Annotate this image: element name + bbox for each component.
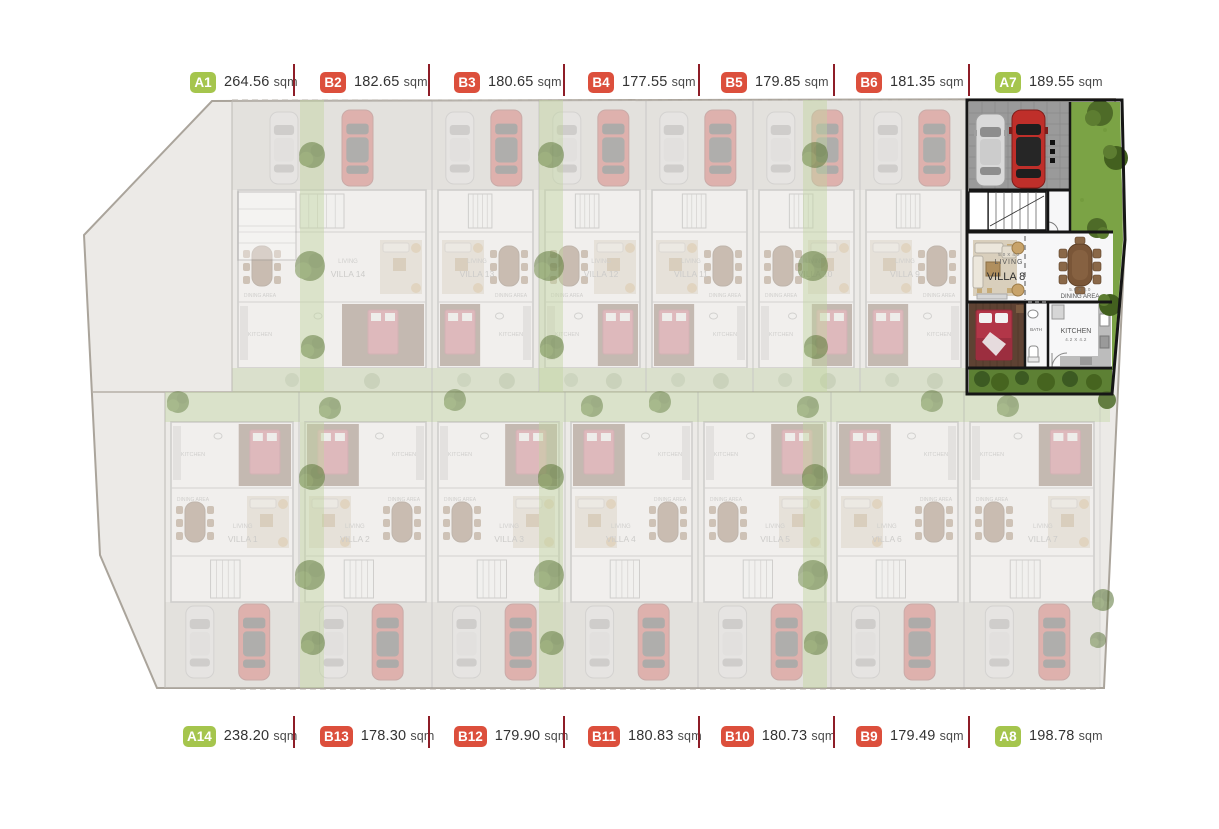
room-label: DINING AREA: [244, 293, 277, 299]
stair: [988, 192, 1046, 230]
tree: [299, 142, 325, 168]
villa-name-label: VILLA 7: [1028, 534, 1058, 544]
tree: [534, 251, 564, 281]
villa-name-label: VILLA 4: [606, 534, 636, 544]
villa8-name-label: VILLA 8: [987, 271, 1026, 283]
plot-badge[interactable]: B11: [588, 726, 620, 747]
room-label: KITCHEN: [713, 332, 737, 338]
silver-car: [985, 606, 1013, 678]
plot-label-A14[interactable]: A14238.20sqm: [183, 723, 298, 749]
plot-badge[interactable]: B13: [320, 726, 353, 747]
tree: [319, 397, 341, 419]
tree: [804, 631, 828, 655]
villa-name-label: VILLA 13: [460, 269, 495, 279]
area-unit: sqm: [811, 729, 835, 743]
plot-label-B10[interactable]: B10180.73sqm: [721, 723, 836, 749]
plot-label-B12[interactable]: B12179.90sqm: [454, 723, 569, 749]
tree: [802, 464, 828, 490]
room-label: LIVING: [1033, 524, 1053, 530]
plot-area: 180.73sqm: [762, 728, 836, 744]
room-label: DINING AREA: [920, 497, 953, 503]
silver-car: [767, 112, 795, 184]
room-label: KITCHEN: [769, 332, 793, 338]
room-label: KITCHEN: [980, 452, 1004, 458]
plot-badge[interactable]: B10: [721, 726, 754, 747]
tree: [797, 396, 819, 418]
tree: [921, 390, 943, 412]
room-label: LIVING: [499, 524, 519, 530]
label-divider: [698, 716, 700, 748]
room-label: KITCHEN: [448, 452, 472, 458]
plot-badge[interactable]: B9: [856, 726, 882, 747]
silver-car: [852, 606, 880, 678]
room-label: DINING AREA: [177, 497, 210, 503]
label-divider: [293, 716, 295, 748]
tree: [538, 464, 564, 490]
tree: [804, 335, 828, 359]
dining-dims-label: 5.9 X 4.0: [1069, 287, 1091, 292]
plot-label-A8[interactable]: A8198.78sqm: [995, 723, 1103, 749]
red-car: [1039, 604, 1070, 680]
tree: [299, 464, 325, 490]
tree: [167, 391, 189, 413]
site-plan-drawing: LIVINGVILLA 14DINING AREAKITCHENLIVINGVI…: [0, 0, 1219, 829]
plot-badge[interactable]: A14: [183, 726, 216, 747]
plot-area: 179.49sqm: [890, 728, 964, 744]
room-label: DINING AREA: [654, 497, 687, 503]
room-label: KITCHEN: [927, 332, 951, 338]
area-unit: sqm: [1079, 729, 1103, 743]
room-label: DINING AREA: [976, 497, 1009, 503]
bottom-label-row: A14238.20sqmB13178.30sqmB12179.90sqmB111…: [0, 716, 1219, 756]
villa8-bedroom: [969, 303, 1025, 367]
label-divider: [833, 716, 835, 748]
silver-car: [974, 114, 1007, 186]
area-unit: sqm: [940, 729, 964, 743]
room-label: LIVING: [611, 524, 631, 530]
tree: [1090, 632, 1106, 648]
villa-name-label: VILLA 5: [760, 534, 790, 544]
plot-area: 198.78sqm: [1029, 728, 1103, 744]
red-car: [342, 110, 373, 186]
highlighted-villa[interactable]: 5.0 X 4.2 LIVING VILLA 8 5.9 X 4.0 DININ…: [967, 100, 1128, 409]
red-car: [239, 604, 270, 680]
room-label: KITCHEN: [658, 452, 682, 458]
room-label: DINING AREA: [709, 293, 742, 299]
plot-area: 179.90sqm: [495, 728, 569, 744]
tree: [301, 335, 325, 359]
villa-unit[interactable]: LIVINGVILLA 7DINING AREAKITCHEN: [964, 392, 1100, 688]
villa-name-label: VILLA 14: [331, 269, 366, 279]
tree: [798, 560, 828, 590]
label-divider: [968, 716, 970, 748]
villa-unit[interactable]: LIVINGVILLA 13DINING AREAKITCHEN: [432, 100, 539, 392]
plot-area: 178.30sqm: [361, 728, 435, 744]
villa-unit[interactable]: LIVINGVILLA 1DINING AREAKITCHEN: [165, 392, 299, 688]
red-car: [919, 110, 950, 186]
villa8-garden: [969, 369, 1112, 393]
kitchen-dims-label: 4.2 X 4.2: [1065, 337, 1087, 342]
room-label: LIVING: [895, 259, 915, 265]
tree: [295, 560, 325, 590]
villa-unit[interactable]: LIVINGVILLA 4DINING AREAKITCHEN: [565, 392, 698, 688]
red-car: [771, 604, 802, 680]
villa-name-label: VILLA 9: [890, 269, 920, 279]
red-car: [1009, 110, 1048, 188]
silver-car: [186, 606, 214, 678]
room-label: LIVING: [591, 259, 611, 265]
corner-porch: [238, 192, 296, 260]
red-car: [505, 604, 536, 680]
tree: [649, 391, 671, 413]
tree: [540, 631, 564, 655]
room-label: LIVING: [233, 524, 253, 530]
room-label: LIVING: [681, 259, 701, 265]
room-label: LIVING: [765, 524, 785, 530]
label-divider: [563, 716, 565, 748]
silver-car: [270, 112, 298, 184]
plot-label-B11[interactable]: B11180.83sqm: [588, 723, 702, 749]
red-car: [598, 110, 629, 186]
red-car: [638, 604, 669, 680]
villa-name-label: VILLA 6: [872, 534, 902, 544]
room-label: DINING AREA: [388, 497, 421, 503]
tree: [540, 335, 564, 359]
tree: [534, 560, 564, 590]
area-unit: sqm: [410, 729, 434, 743]
kitchen-label: KITCHEN: [1061, 328, 1092, 335]
plot-label-B13[interactable]: B13178.30sqm: [320, 723, 435, 749]
tree: [798, 251, 828, 281]
label-divider: [428, 716, 430, 748]
tree: [581, 395, 603, 417]
silver-car: [719, 606, 747, 678]
silver-car: [446, 112, 474, 184]
dining-label: DINING AREA: [1061, 294, 1100, 300]
silver-car: [586, 606, 614, 678]
living-label: LIVING: [995, 259, 1024, 266]
plot-area: 238.20sqm: [224, 728, 298, 744]
villa-name-label: VILLA 1: [228, 534, 258, 544]
villa-name-label: VILLA 2: [340, 534, 370, 544]
room-label: LIVING: [338, 259, 358, 265]
room-label: LIVING: [877, 524, 897, 530]
site-plan-page: A1264.56sqmB2182.65sqmB3180.65sqmB4177.5…: [0, 0, 1219, 829]
room-label: KITCHEN: [181, 452, 205, 458]
tree: [997, 395, 1019, 417]
plot-badge[interactable]: B12: [454, 726, 487, 747]
villa-unit[interactable]: LIVINGVILLA 11DINING AREAKITCHEN: [646, 100, 753, 392]
entry-closet: [969, 192, 988, 230]
plot-label-B9[interactable]: B9179.49sqm: [856, 723, 964, 749]
room-label: DINING AREA: [710, 497, 743, 503]
room-label: DINING AREA: [765, 293, 798, 299]
red-car: [904, 604, 935, 680]
tree: [444, 389, 466, 411]
villa8-living-furniture: [973, 240, 1024, 299]
living-dims-label: 5.0 X 4.2: [998, 252, 1020, 257]
villa-unit[interactable]: LIVINGVILLA 6DINING AREAKITCHEN: [831, 392, 964, 688]
red-car: [491, 110, 522, 186]
parking-marker-dots: [1050, 140, 1055, 163]
silver-car: [453, 606, 481, 678]
villa-unit[interactable]: LIVINGVILLA 9DINING AREAKITCHEN: [860, 100, 967, 392]
red-car: [372, 604, 403, 680]
room-label: DINING AREA: [444, 497, 477, 503]
room-label: LIVING: [467, 259, 487, 265]
room-label: KITCHEN: [248, 332, 272, 338]
room-label: KITCHEN: [924, 452, 948, 458]
red-car: [705, 110, 736, 186]
villa-name-label: VILLA 11: [674, 269, 708, 279]
room-label: DINING AREA: [923, 293, 956, 299]
villa-name-label: VILLA 3: [494, 534, 524, 544]
tree: [295, 251, 325, 281]
room-label: KITCHEN: [714, 452, 738, 458]
room-label: KITCHEN: [392, 452, 416, 458]
bath-label: BATH: [1030, 327, 1042, 332]
silver-car: [660, 112, 688, 184]
villa-name-label: VILLA 12: [584, 269, 619, 279]
silver-car: [874, 112, 902, 184]
room-label: KITCHEN: [499, 332, 523, 338]
plot-area: 180.83sqm: [628, 728, 702, 744]
plot-badge[interactable]: A8: [995, 726, 1021, 747]
tree: [538, 142, 564, 168]
room-label: DINING AREA: [495, 293, 528, 299]
tree: [1092, 589, 1114, 611]
tree: [301, 631, 325, 655]
tree: [802, 142, 828, 168]
middle-green-band: [165, 392, 1110, 422]
room-label: LIVING: [345, 524, 365, 530]
